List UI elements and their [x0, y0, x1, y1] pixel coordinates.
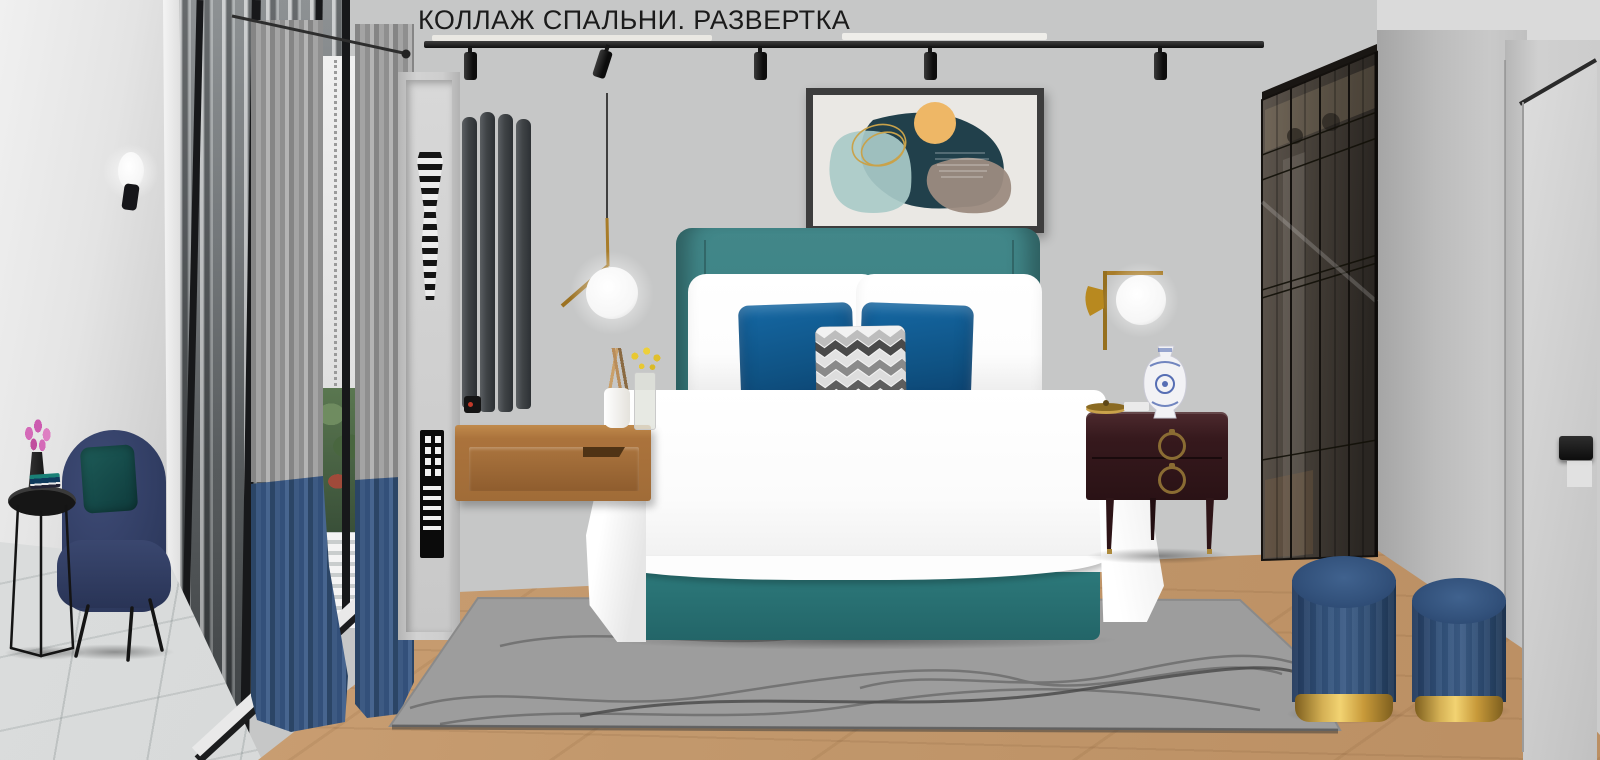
side-table-legs [11, 506, 73, 656]
porcelain-vase [1144, 346, 1187, 418]
detail-overlay [0, 0, 1600, 760]
curtain-rod-finial [402, 50, 411, 59]
pendant-lamp [562, 93, 654, 335]
wall-sconce-right [1085, 262, 1179, 350]
brass-dish [1086, 400, 1149, 414]
nightstand-legs [1106, 498, 1214, 554]
armchair-legs [76, 600, 162, 660]
curtain-rod [232, 16, 408, 54]
wall-sconce-left [103, 144, 159, 211]
door-top-frame [1520, 60, 1596, 104]
bedroom-collage-canvas: КОЛЛАЖ СПАЛЬНИ. РАЗВЕРТКА [0, 0, 1600, 760]
